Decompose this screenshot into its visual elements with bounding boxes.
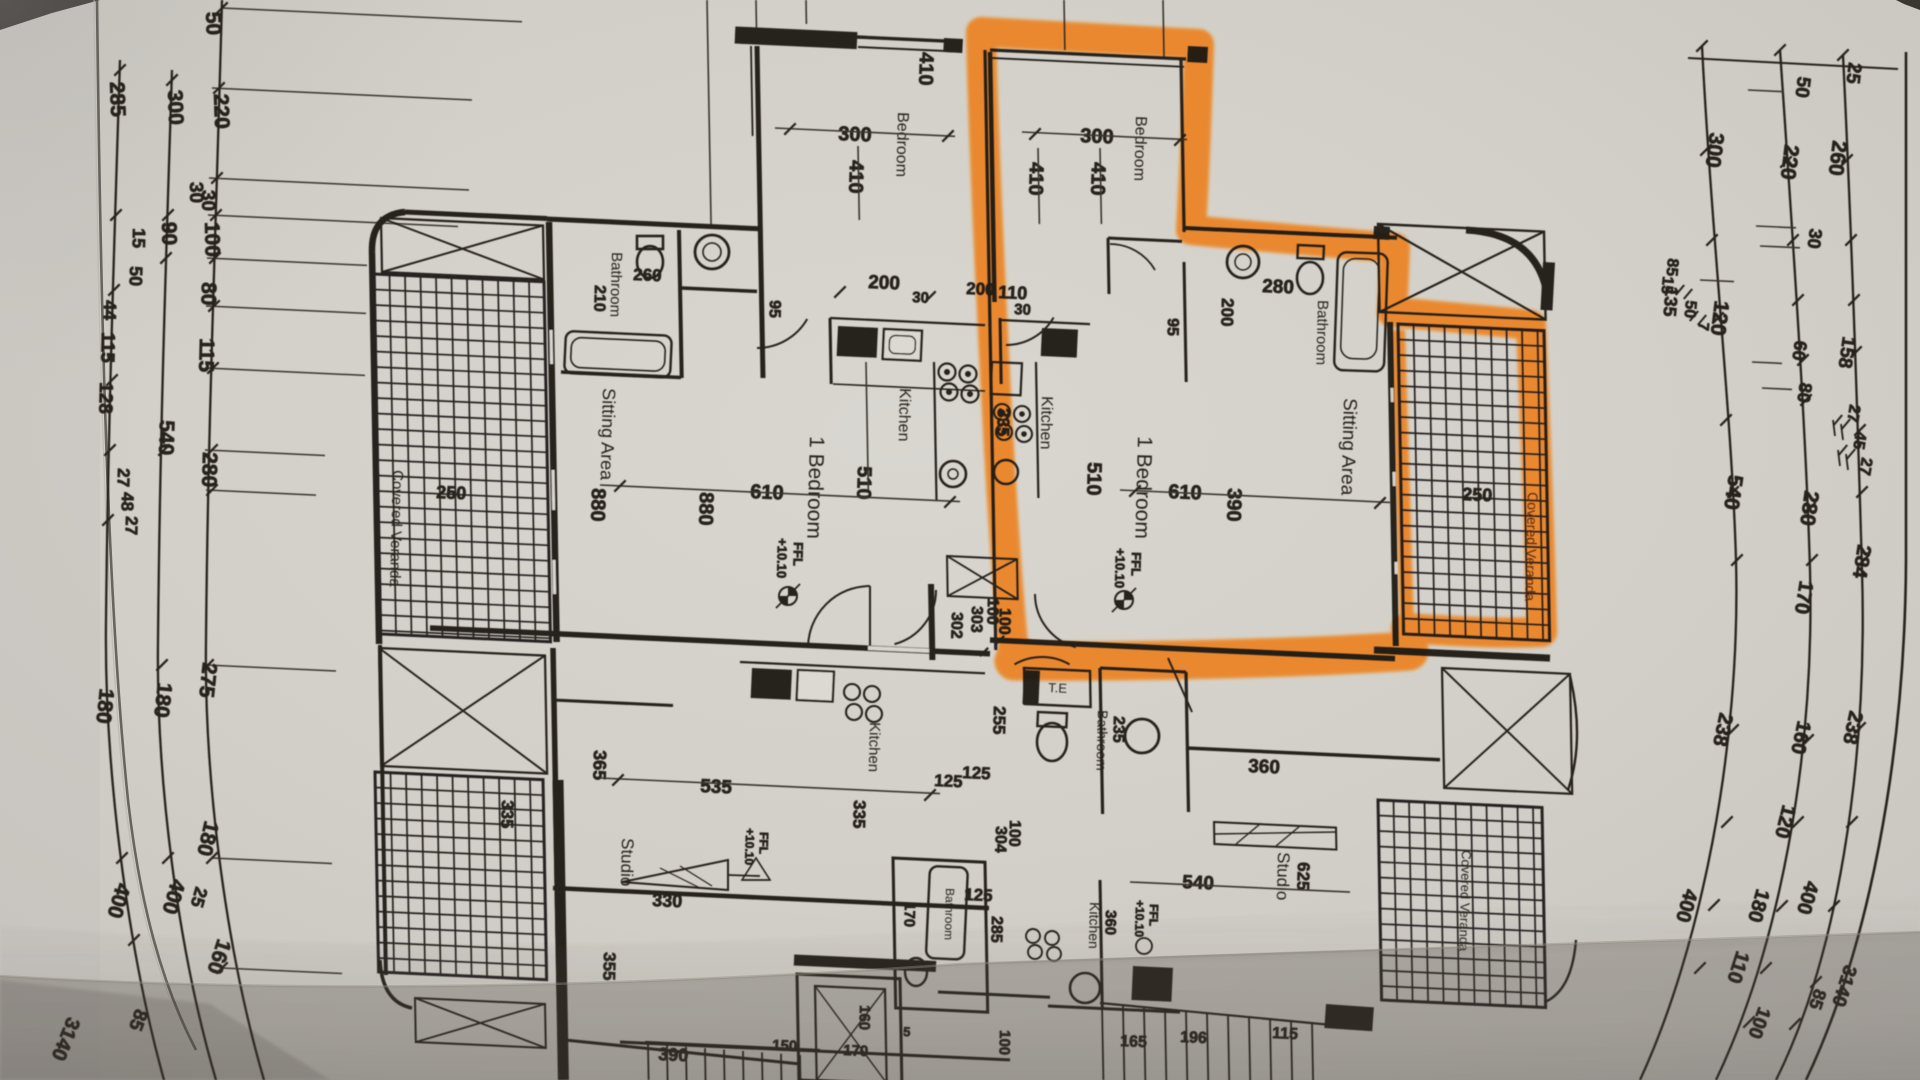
svg-text:1 Bedroom: 1 Bedroom (802, 436, 828, 539)
svg-text:30: 30 (1804, 228, 1826, 250)
svg-text:255: 255 (989, 706, 1009, 735)
svg-text:115: 115 (194, 338, 218, 373)
svg-text:250: 250 (436, 482, 467, 503)
svg-text:303: 303 (967, 606, 985, 633)
svg-text:300: 300 (163, 89, 187, 125)
svg-text:50: 50 (1790, 75, 1813, 99)
svg-text:158: 158 (1834, 335, 1859, 369)
svg-text:30: 30 (1014, 301, 1031, 319)
svg-text:Bathroom: Bathroom (606, 252, 625, 317)
svg-text:220: 220 (209, 93, 233, 129)
svg-text:Covered Veranda: Covered Veranda (386, 470, 406, 588)
svg-text:25: 25 (1841, 61, 1864, 85)
svg-text:115: 115 (96, 332, 118, 364)
svg-text:125: 125 (934, 771, 963, 791)
svg-text:220: 220 (1776, 143, 1803, 181)
svg-text:44: 44 (99, 300, 120, 321)
svg-text:880: 880 (694, 492, 717, 526)
svg-text:FFL: FFL (756, 832, 771, 854)
svg-text:Studio: Studio (1273, 852, 1293, 901)
svg-text:510: 510 (852, 466, 875, 500)
svg-text:390: 390 (1222, 488, 1245, 522)
svg-text:27: 27 (122, 516, 141, 535)
svg-text:880: 880 (586, 488, 609, 522)
svg-text:275: 275 (194, 661, 221, 699)
svg-text:50: 50 (125, 266, 146, 287)
svg-text:80: 80 (1793, 381, 1816, 404)
svg-text:540: 540 (154, 420, 178, 456)
svg-text:Bedroom: Bedroom (892, 112, 911, 177)
svg-text:45: 45 (1849, 430, 1869, 450)
svg-text:128: 128 (94, 382, 116, 414)
svg-text:410: 410 (914, 52, 937, 86)
svg-text:100: 100 (1005, 820, 1023, 847)
svg-text:Bathroom: Bathroom (1093, 710, 1111, 771)
svg-text:180: 180 (91, 687, 118, 724)
svg-text:300: 300 (1701, 131, 1728, 169)
svg-text:410: 410 (844, 160, 867, 194)
svg-text:280: 280 (1262, 276, 1295, 298)
svg-text:410: 410 (1086, 162, 1109, 196)
svg-text:60: 60 (1788, 339, 1811, 362)
svg-text:95: 95 (766, 300, 783, 318)
svg-text:Kitchen: Kitchen (865, 722, 883, 772)
svg-text:540: 540 (1719, 473, 1747, 511)
svg-text:410: 410 (1024, 162, 1047, 196)
svg-text:30: 30 (197, 190, 218, 212)
svg-text:27: 27 (1843, 403, 1863, 423)
svg-text:+10.10: +10.10 (1112, 548, 1128, 589)
svg-text:Sitting Area: Sitting Area (1336, 398, 1360, 496)
svg-text:360: 360 (1248, 756, 1281, 778)
svg-text:27: 27 (1855, 456, 1875, 476)
svg-text:280: 280 (197, 452, 221, 488)
svg-text:50: 50 (1680, 300, 1698, 319)
svg-text:300: 300 (838, 123, 872, 146)
svg-text:30: 30 (912, 289, 929, 307)
svg-text:125: 125 (962, 763, 991, 783)
svg-text:Sitting Area: Sitting Area (597, 388, 619, 482)
svg-text:Bedroom: Bedroom (1130, 116, 1149, 181)
svg-text:210: 210 (590, 285, 608, 312)
svg-text:200: 200 (868, 272, 901, 294)
svg-text:27: 27 (114, 468, 133, 487)
svg-text:365: 365 (589, 750, 610, 781)
svg-text:250: 250 (1462, 484, 1493, 505)
svg-text:625: 625 (1293, 862, 1313, 891)
svg-text:48: 48 (118, 492, 137, 511)
svg-text:15: 15 (128, 228, 149, 249)
svg-text:540: 540 (1182, 872, 1215, 894)
svg-text:90: 90 (157, 222, 180, 246)
svg-text:Kitchen: Kitchen (1037, 396, 1055, 450)
svg-text:535: 535 (700, 776, 733, 798)
svg-text:302: 302 (947, 612, 965, 639)
svg-text:95: 95 (1164, 318, 1181, 336)
svg-text:180: 180 (149, 681, 176, 718)
svg-text:T.E: T.E (1048, 680, 1068, 696)
svg-text:135: 135 (1659, 286, 1682, 318)
svg-text:50: 50 (201, 11, 225, 35)
svg-text:280: 280 (1795, 489, 1823, 527)
svg-text:1 Bedroom: 1 Bedroom (1130, 436, 1156, 539)
svg-text:260: 260 (633, 265, 662, 285)
svg-text:200: 200 (1217, 298, 1237, 327)
svg-text:100: 100 (200, 222, 224, 257)
svg-text:285: 285 (105, 81, 129, 117)
svg-text:510: 510 (1082, 462, 1105, 496)
svg-text:+10.10: +10.10 (774, 538, 790, 579)
svg-text:120: 120 (1706, 299, 1733, 337)
svg-text:335: 335 (849, 800, 869, 829)
svg-text:80: 80 (196, 282, 220, 306)
svg-text:85: 85 (1662, 258, 1680, 277)
svg-text:FFL: FFL (1128, 552, 1144, 576)
svg-text:FFL: FFL (790, 542, 806, 566)
svg-text:260: 260 (1824, 139, 1851, 177)
svg-text:Bathroom: Bathroom (1312, 300, 1331, 365)
svg-text:335: 335 (497, 800, 517, 829)
svg-text:Kitchen: Kitchen (895, 388, 913, 442)
